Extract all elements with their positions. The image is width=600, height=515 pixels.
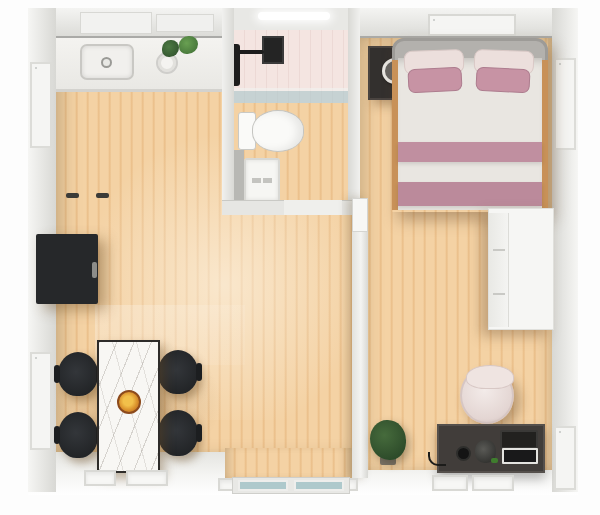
desk-chair (460, 367, 514, 424)
door-glass-panel (238, 480, 288, 491)
window-right-upper (554, 58, 576, 150)
dining-chair (58, 412, 98, 458)
laptop-lid (500, 430, 538, 449)
bathroom-wall (222, 8, 234, 215)
window-sill (472, 475, 514, 491)
door-hinge (96, 193, 109, 198)
apartment-floorplan-render (0, 0, 600, 515)
double-bed (392, 38, 548, 212)
food-bowl (117, 390, 141, 414)
dining-chair (158, 410, 198, 456)
bathroom-door-threshold (284, 200, 342, 215)
sliding-balcony-door (232, 477, 350, 494)
door-jamb (352, 198, 368, 232)
window-sill (432, 475, 468, 491)
window-top-above-bed (428, 14, 516, 36)
duvet-stripe (398, 182, 542, 206)
balcony-door-floor (225, 448, 353, 478)
dining-chair (158, 350, 198, 394)
potted-plant (370, 420, 406, 466)
window-left-lower (30, 352, 52, 450)
faucet-icon (101, 57, 112, 68)
wardrobe (488, 208, 554, 330)
window-left-upper (30, 62, 52, 148)
bath-mat (244, 158, 280, 202)
range-hood-panel (80, 12, 152, 34)
duvet-stripe (398, 142, 542, 162)
window-right-lower (554, 426, 576, 490)
interior-divider-wall (352, 198, 368, 478)
mug (456, 446, 471, 461)
bathroom-wall (348, 8, 360, 215)
dining-chair (58, 352, 98, 396)
wardrobe-drawers (489, 213, 509, 327)
shower-wall-panel (262, 36, 284, 64)
window-sill (84, 470, 116, 486)
wall-panel (234, 150, 244, 202)
black-cabinet (36, 234, 98, 304)
pillow (407, 67, 462, 94)
range-hood-panel (156, 14, 214, 32)
door-glass-panel (294, 480, 344, 491)
laptop-screen (502, 448, 538, 464)
window-sill (126, 470, 168, 486)
bathroom (222, 8, 360, 215)
toilet-bowl (252, 110, 304, 152)
cabinet-handle (92, 262, 97, 278)
door-hinge (66, 193, 79, 198)
desk-gadget (475, 440, 496, 463)
plant-foliage (370, 420, 406, 460)
shower-arm (238, 50, 264, 54)
ceiling-light (258, 12, 330, 20)
pillow (475, 67, 530, 94)
